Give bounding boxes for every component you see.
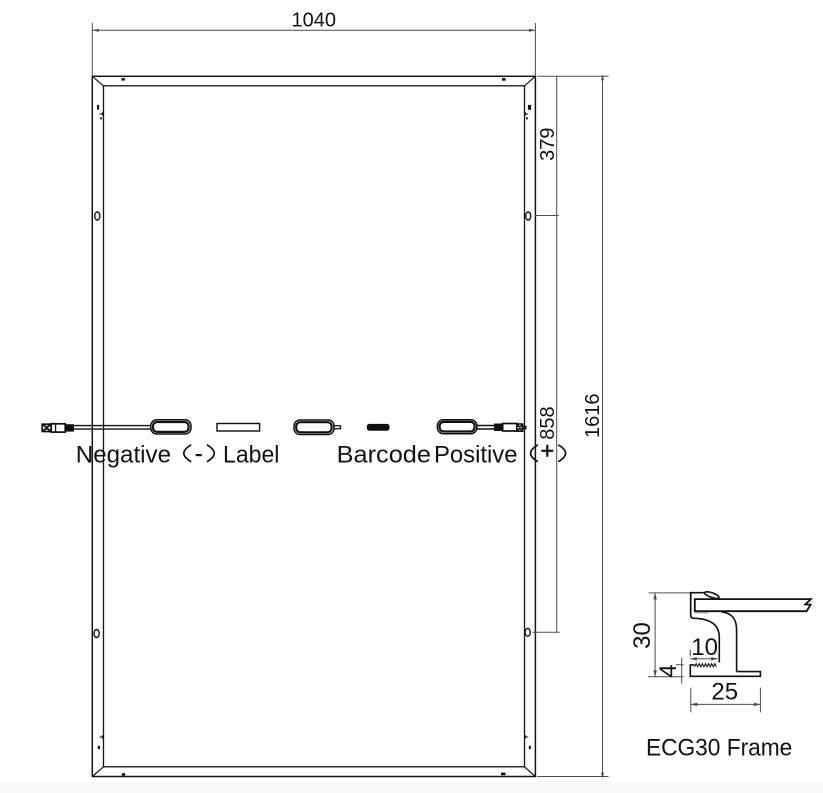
svg-text:25: 25 [711, 678, 738, 705]
svg-text:Positive: Positive [434, 441, 518, 468]
svg-text:1616: 1616 [582, 394, 604, 439]
svg-text:1040: 1040 [292, 10, 337, 32]
svg-text:Label: Label [223, 441, 279, 468]
svg-text:30: 30 [629, 622, 656, 649]
svg-text:379: 379 [537, 128, 559, 161]
svg-text:858: 858 [537, 406, 559, 439]
svg-text:10: 10 [691, 634, 718, 661]
svg-text:ECG30 Frame: ECG30 Frame [646, 735, 792, 762]
svg-text:Negative: Negative [76, 441, 171, 468]
svg-text:4: 4 [655, 664, 682, 677]
svg-text:Barcode: Barcode [337, 441, 431, 468]
